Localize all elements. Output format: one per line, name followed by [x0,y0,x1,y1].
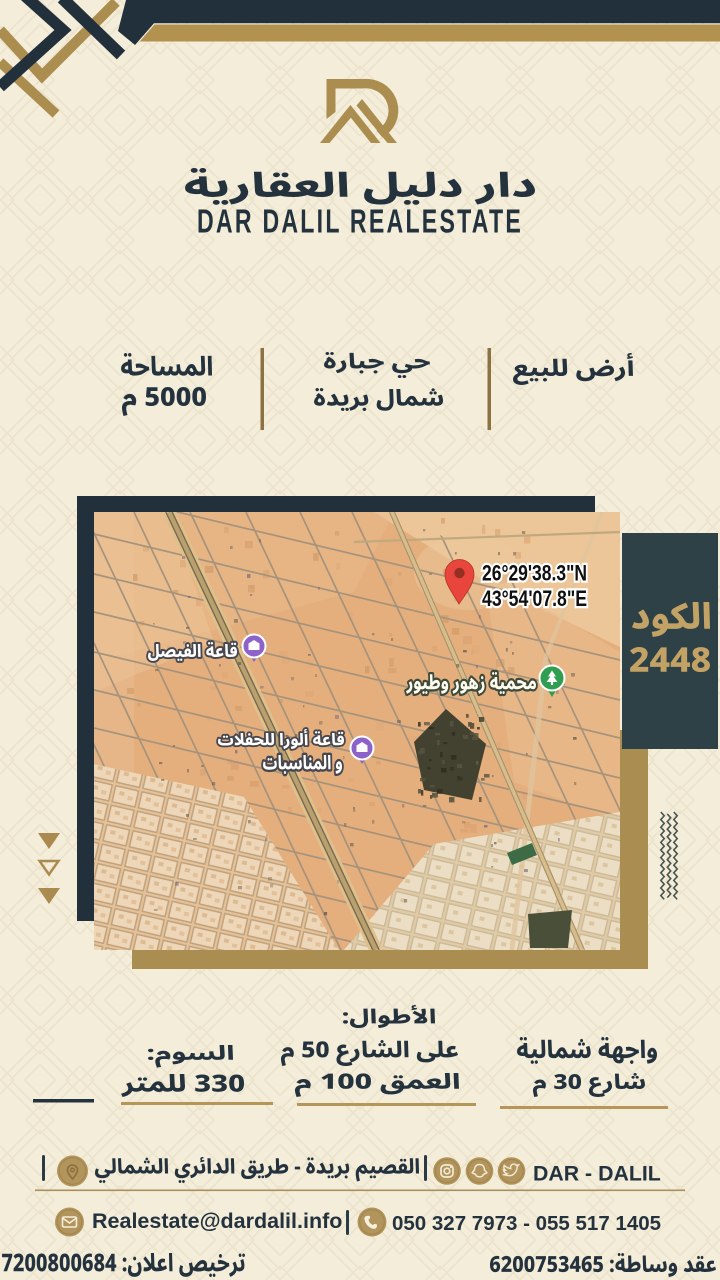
svg-text:DAR - DALIL: DAR - DALIL [533,1162,661,1186]
svg-text:26°29'38.3"N: 26°29'38.3"N [482,561,587,586]
svg-text:Realestate@dardalil.info: Realestate@dardalil.info [92,1209,342,1233]
svg-text:050 327 7973 - 055 517 1405: 050 327 7973 - 055 517 1405 [392,1212,661,1235]
svg-text:43°54'07.8"E: 43°54'07.8"E [482,586,587,611]
